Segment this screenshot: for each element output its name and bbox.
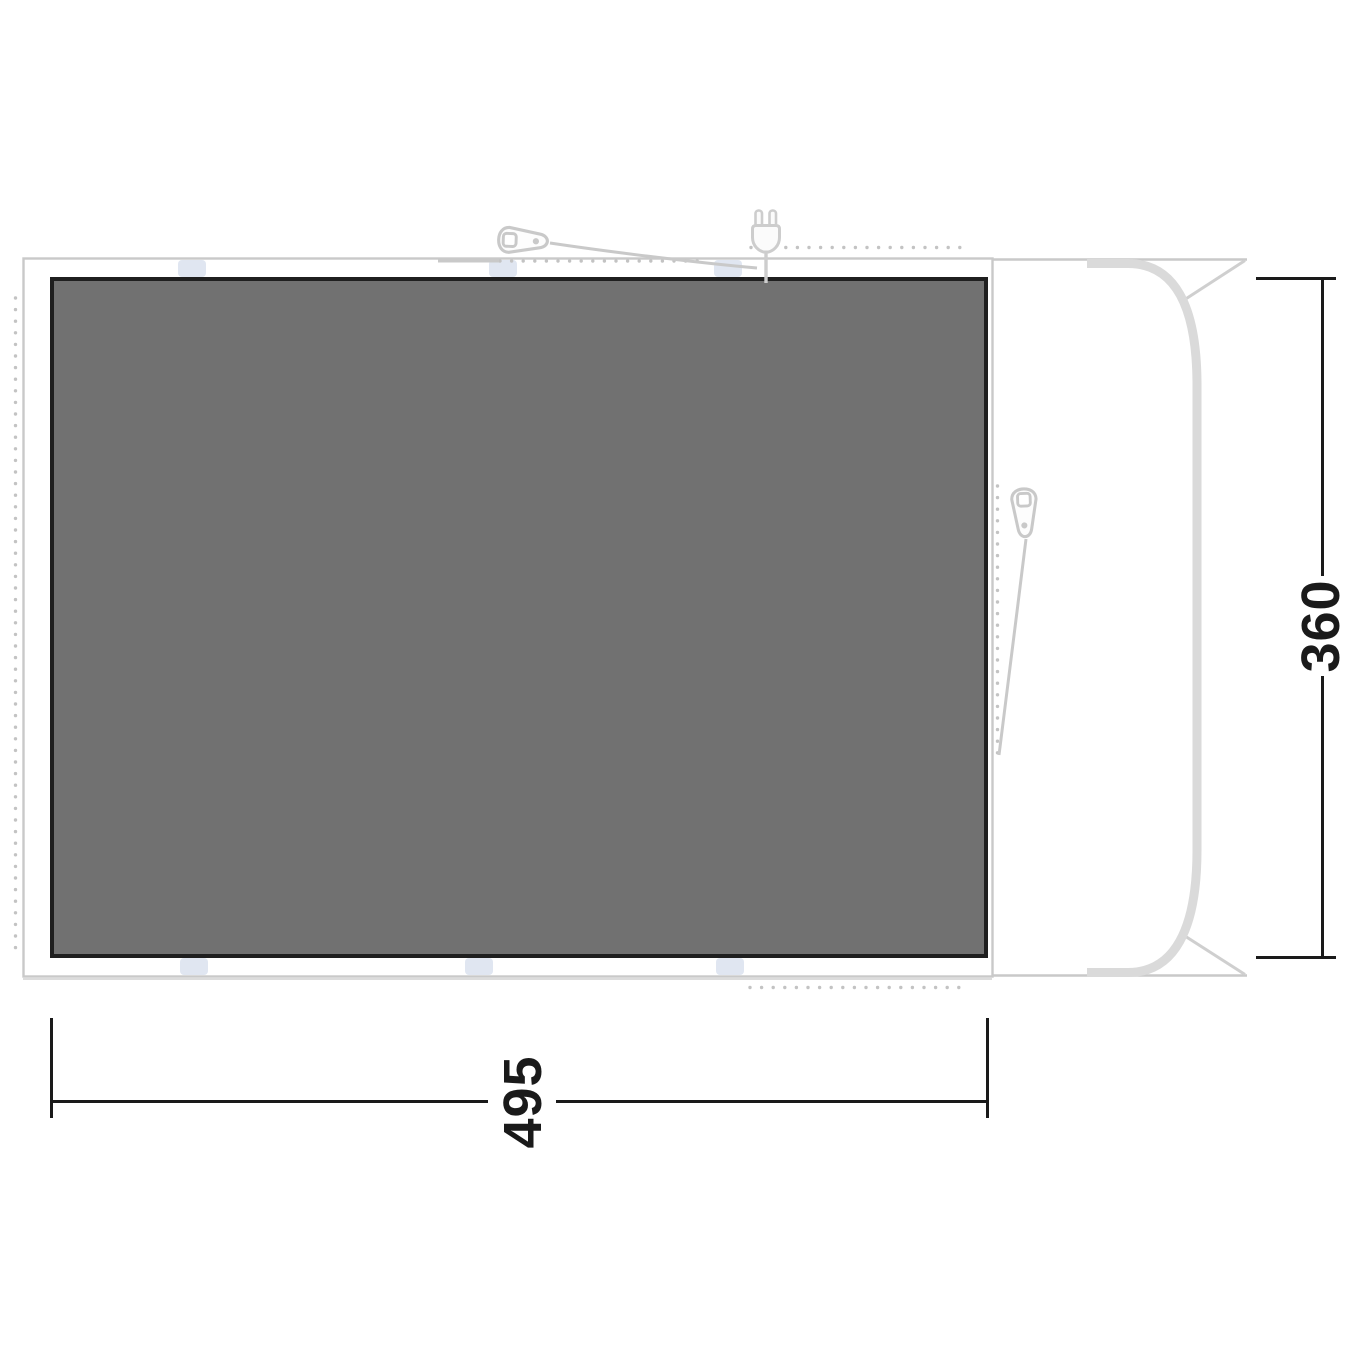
- attachment-tab: [714, 260, 742, 277]
- attachment-tab: [465, 958, 493, 975]
- attachment-tab: [180, 958, 208, 975]
- floorplan: 495 360: [0, 0, 1352, 1352]
- attachment-tab: [178, 260, 206, 277]
- tunnel-bottom-diagonal: [1181, 934, 1245, 975]
- plug-body: [753, 226, 780, 253]
- vehicle-silhouette: [992, 260, 1247, 976]
- attachment-tab: [716, 958, 744, 975]
- zipper-pull-hole: [503, 233, 516, 246]
- groundsheet-area: [52, 279, 986, 956]
- zip-cord-side: [999, 539, 1026, 755]
- floorplan-diagram: 495 360: [0, 0, 1352, 1352]
- vehicle-side-profile: [1087, 264, 1197, 973]
- tunnel-top-diagonal: [1181, 261, 1245, 303]
- zipper-pull-icon: [1011, 489, 1037, 538]
- height-dimension-label: 360: [1291, 579, 1351, 672]
- attachment-tab: [489, 260, 517, 277]
- zipper-pull-icon: [498, 227, 548, 254]
- zipper-pull-hole: [1017, 493, 1030, 506]
- width-dimension-label: 495: [493, 1055, 553, 1148]
